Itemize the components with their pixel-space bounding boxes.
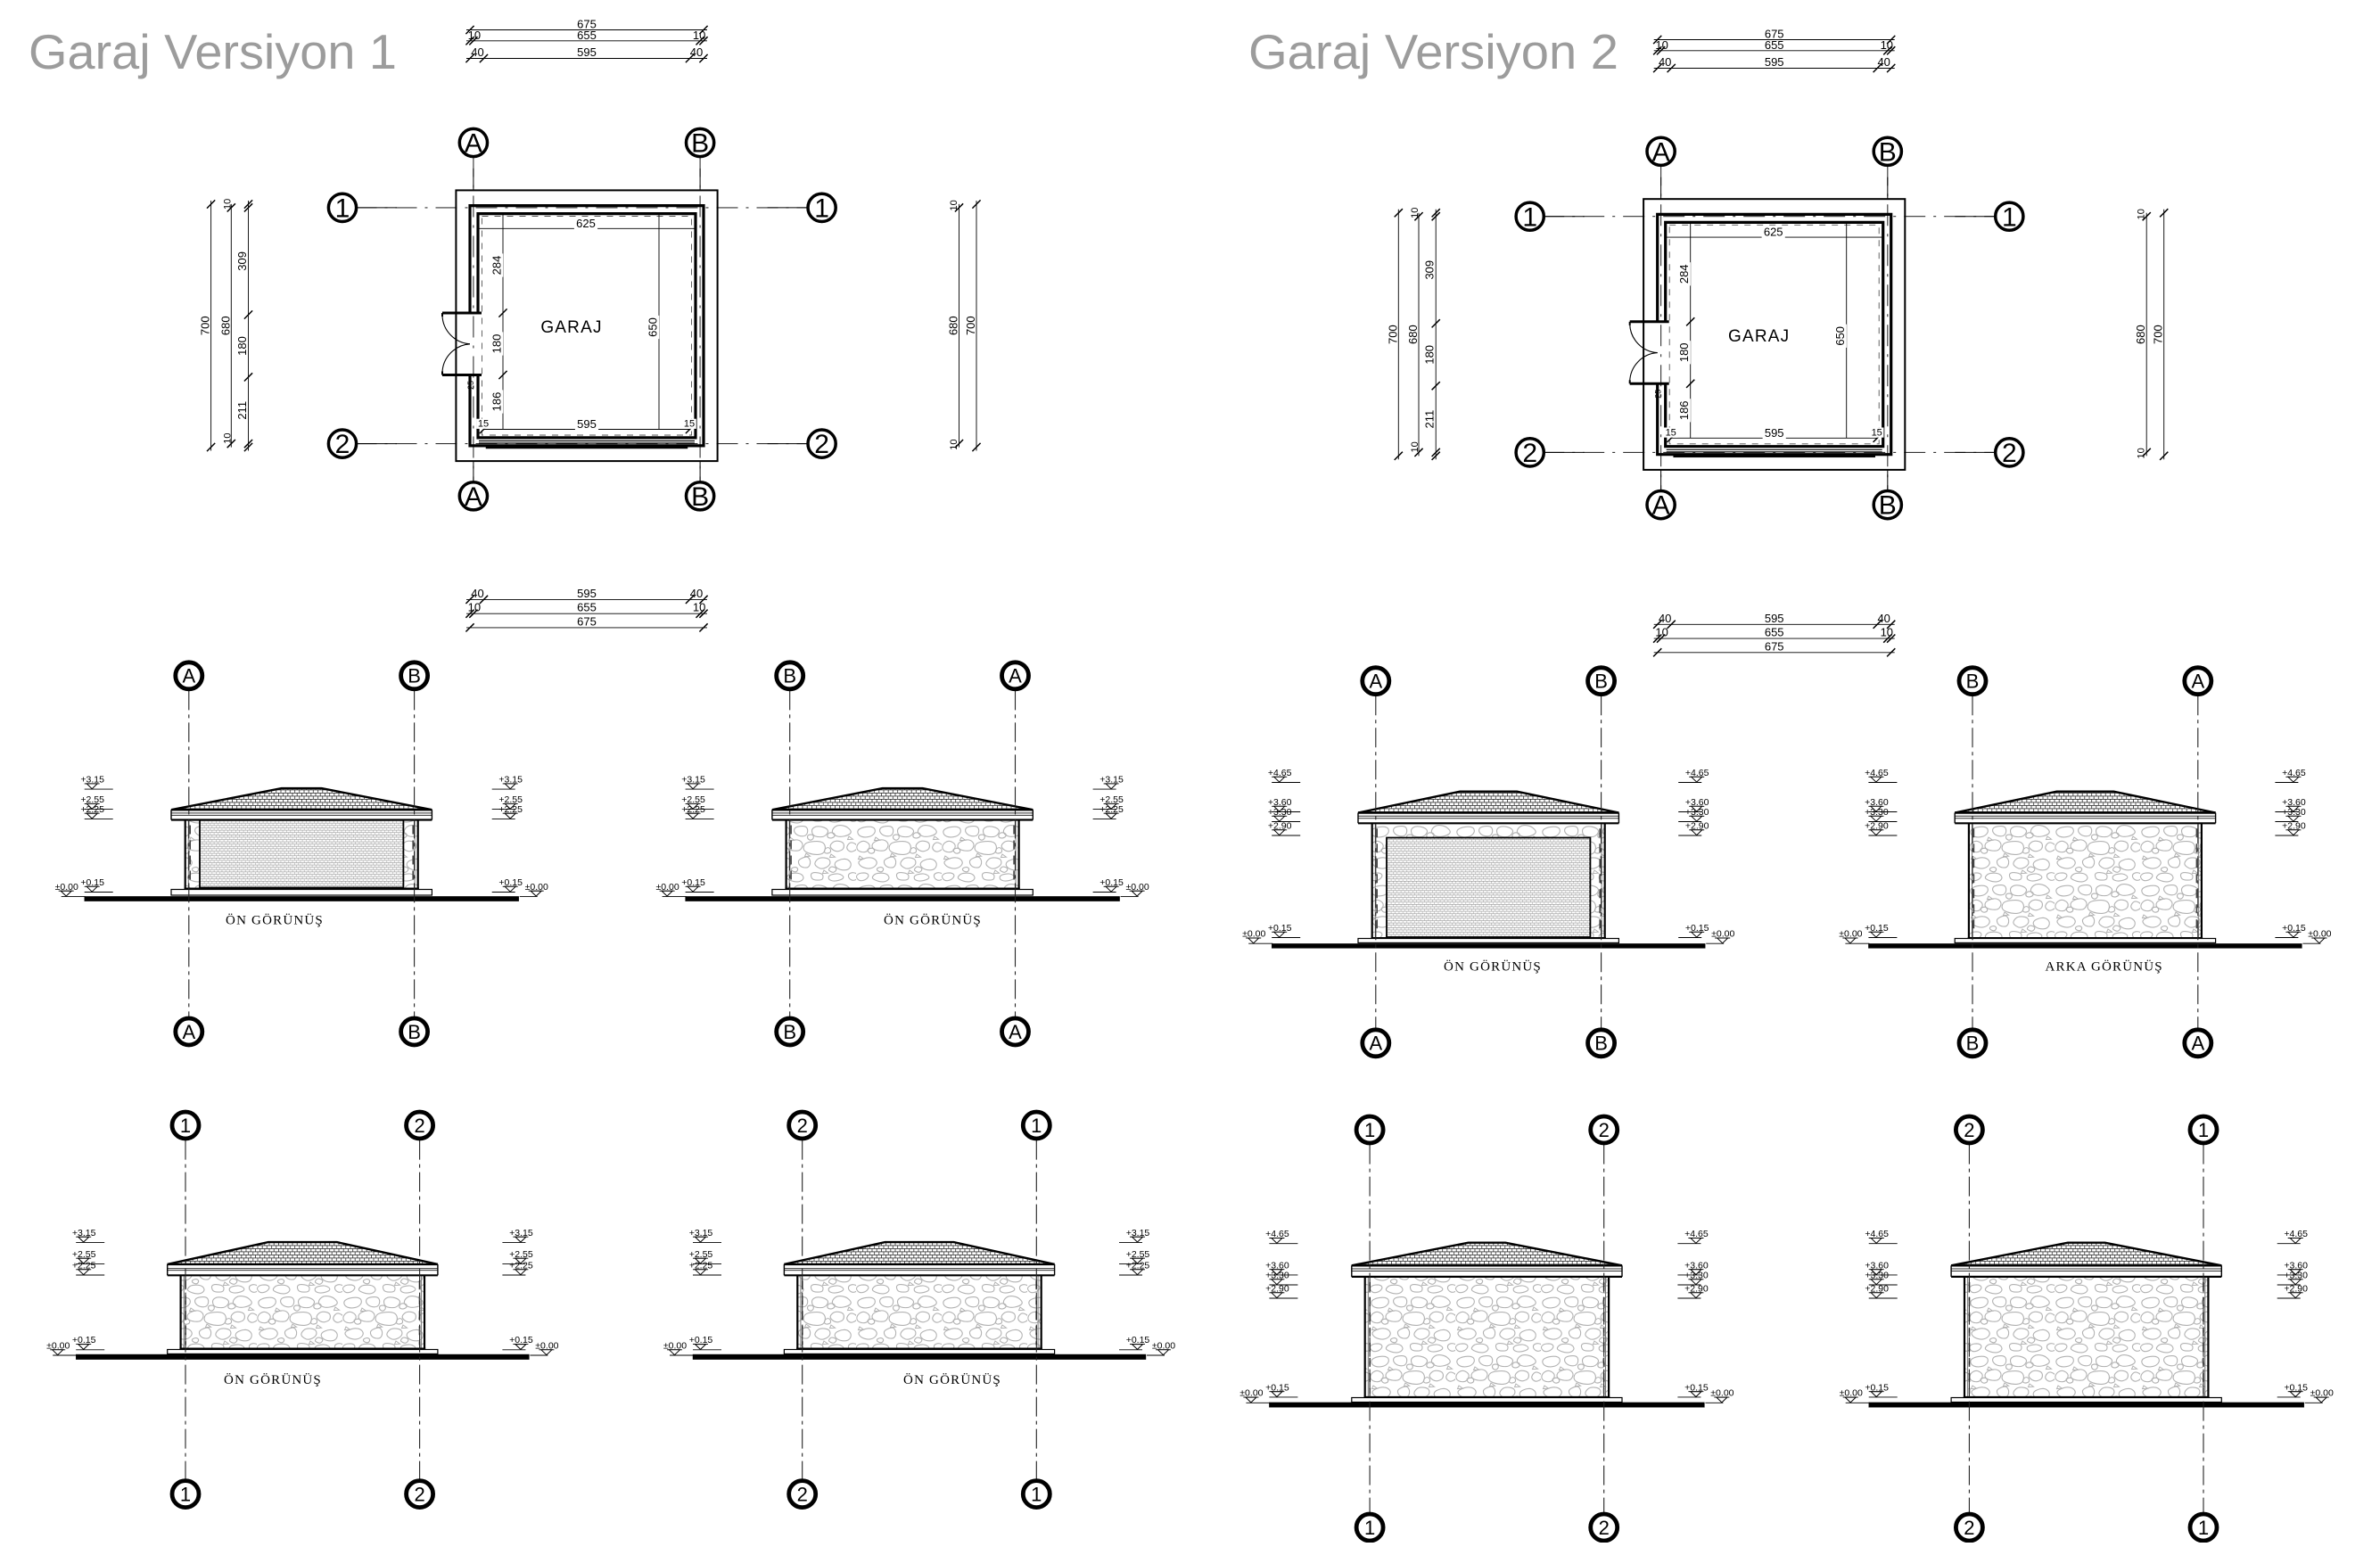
svg-text:700: 700 [199,316,212,335]
svg-text:10: 10 [693,601,705,614]
svg-text:A: A [2191,671,2204,693]
svg-text:655: 655 [1765,626,1784,639]
svg-text:186: 186 [490,392,504,412]
svg-text:655: 655 [577,29,597,42]
svg-text:B: B [1966,671,1980,693]
svg-text:650: 650 [646,317,660,337]
svg-text:2: 2 [1599,1517,1610,1539]
svg-text:1: 1 [2198,1119,2209,1141]
svg-text:10: 10 [949,200,959,210]
svg-text:10: 10 [222,199,233,210]
svg-text:25: 25 [1654,390,1663,399]
svg-text:B: B [408,665,421,687]
svg-text:284: 284 [490,256,504,276]
svg-text:1: 1 [2002,202,2017,232]
svg-text:A: A [1009,665,1022,687]
svg-text:2: 2 [335,430,350,459]
svg-text:186: 186 [1677,400,1691,420]
svg-text:680: 680 [218,316,232,335]
svg-text:1: 1 [180,1483,191,1505]
svg-text:25: 25 [466,381,475,390]
svg-text:625: 625 [576,217,596,230]
svg-text:180: 180 [1677,342,1691,362]
svg-text:700: 700 [1386,325,1399,344]
svg-text:1: 1 [335,194,350,224]
svg-text:675: 675 [1765,639,1784,653]
svg-text:700: 700 [964,316,977,335]
svg-text:40: 40 [471,587,483,600]
svg-text:B: B [783,1021,796,1043]
svg-text:A: A [1369,671,1382,693]
svg-text:650: 650 [1833,326,1847,346]
svg-text:2: 2 [2002,439,2017,468]
svg-text:A: A [1369,1033,1382,1055]
svg-text:655: 655 [577,601,597,614]
svg-text:A: A [2191,1033,2204,1055]
svg-text:211: 211 [1423,410,1437,429]
svg-text:180: 180 [235,336,249,356]
svg-text:1: 1 [180,1115,191,1137]
svg-text:284: 284 [1677,264,1691,284]
svg-text:B: B [408,1021,421,1043]
svg-text:595: 595 [1765,612,1784,625]
svg-text:ÖN GÖRÜNÜŞ: ÖN GÖRÜNÜŞ [224,1372,322,1387]
svg-text:15: 15 [478,419,489,430]
svg-text:595: 595 [577,587,597,600]
svg-text:GARAJ: GARAJ [1728,327,1790,346]
svg-text:15: 15 [1666,427,1676,438]
svg-text:1: 1 [1522,202,1537,232]
svg-text:15: 15 [1872,427,1882,438]
svg-text:595: 595 [1765,55,1784,69]
svg-text:A: A [465,129,482,159]
svg-text:10: 10 [949,439,959,449]
svg-text:680: 680 [2134,325,2147,344]
svg-text:180: 180 [1423,345,1437,365]
svg-text:655: 655 [1765,38,1784,52]
svg-text:2: 2 [414,1115,424,1137]
svg-text:1: 1 [1031,1483,1042,1505]
svg-text:40: 40 [471,45,483,59]
svg-text:700: 700 [2152,325,2165,344]
svg-text:595: 595 [1765,426,1784,440]
svg-text:Garaj Versiyon 2: Garaj Versiyon 2 [1248,24,1618,79]
svg-text:2: 2 [1522,439,1537,468]
svg-text:1: 1 [1364,1119,1375,1141]
svg-text:B: B [1594,671,1608,693]
svg-text:595: 595 [577,417,597,431]
svg-text:2: 2 [414,1483,424,1505]
svg-text:ÖN GÖRÜNÜŞ: ÖN GÖRÜNÜŞ [1444,959,1542,974]
svg-text:B: B [1966,1033,1980,1055]
svg-text:10: 10 [1410,208,1421,218]
svg-text:2: 2 [797,1115,808,1137]
svg-text:10: 10 [2137,448,2147,458]
svg-text:Garaj Versiyon 1: Garaj Versiyon 1 [29,24,397,79]
svg-text:625: 625 [1764,226,1783,239]
svg-text:309: 309 [235,251,249,271]
svg-text:10: 10 [1410,441,1421,452]
svg-text:10: 10 [1881,626,1893,639]
svg-text:A: A [1009,1021,1022,1043]
svg-text:1: 1 [2198,1517,2209,1539]
svg-text:2: 2 [1964,1517,1974,1539]
svg-text:211: 211 [235,401,249,420]
svg-text:10: 10 [222,432,233,443]
svg-text:2: 2 [797,1483,808,1505]
svg-text:GARAJ: GARAJ [540,318,602,337]
svg-text:ÖN GÖRÜNÜŞ: ÖN GÖRÜNÜŞ [903,1372,1001,1387]
svg-text:B: B [1594,1033,1608,1055]
svg-text:10: 10 [2137,209,2147,219]
svg-text:B: B [691,129,709,159]
svg-text:40: 40 [1659,612,1671,625]
svg-text:B: B [1879,491,1897,521]
svg-text:675: 675 [577,614,597,628]
svg-text:ARKA GÖRÜNÜŞ: ARKA GÖRÜNÜŞ [2046,959,2163,974]
svg-text:1: 1 [1364,1517,1375,1539]
svg-text:1: 1 [814,194,829,224]
svg-text:1: 1 [1031,1115,1042,1137]
svg-text:309: 309 [1423,260,1437,280]
svg-text:B: B [1879,138,1897,168]
svg-text:2: 2 [1599,1119,1610,1141]
svg-text:40: 40 [1659,55,1671,69]
svg-text:2: 2 [814,430,829,459]
svg-text:680: 680 [1406,325,1420,344]
svg-text:A: A [182,1021,195,1043]
svg-text:2: 2 [1964,1119,1974,1141]
svg-text:A: A [182,665,195,687]
svg-text:A: A [1652,138,1670,168]
svg-text:ÖN GÖRÜNÜŞ: ÖN GÖRÜNÜŞ [226,913,324,928]
svg-text:B: B [783,665,796,687]
svg-text:680: 680 [947,316,960,335]
svg-text:180: 180 [490,334,504,354]
svg-text:ÖN GÖRÜNÜŞ: ÖN GÖRÜNÜŞ [884,913,982,928]
svg-text:A: A [1652,491,1670,521]
svg-text:B: B [691,482,709,512]
svg-text:A: A [465,482,482,512]
svg-text:15: 15 [684,419,695,430]
svg-text:595: 595 [577,45,597,59]
